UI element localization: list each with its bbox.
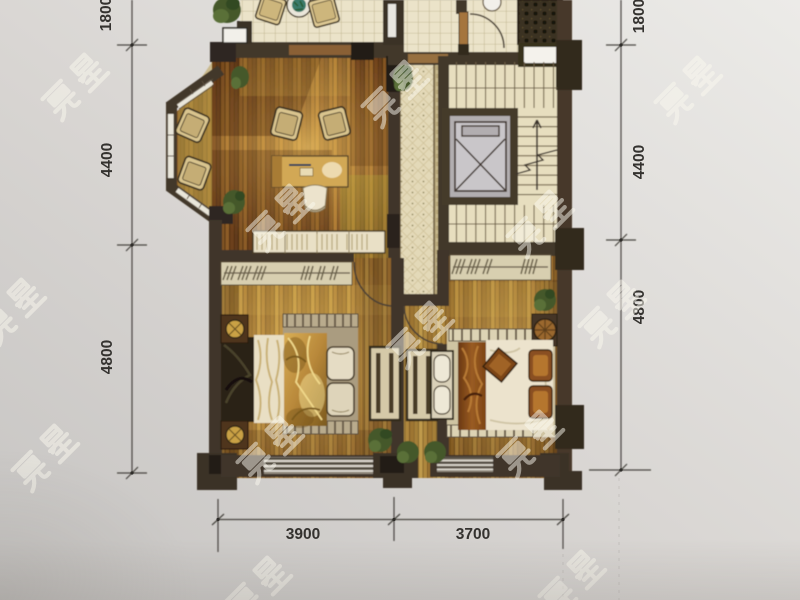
svg-text:4400: 4400 [631,145,648,179]
svg-text:4400: 4400 [99,143,116,177]
svg-text:1800: 1800 [98,0,115,31]
svg-text:1800: 1800 [631,0,648,33]
